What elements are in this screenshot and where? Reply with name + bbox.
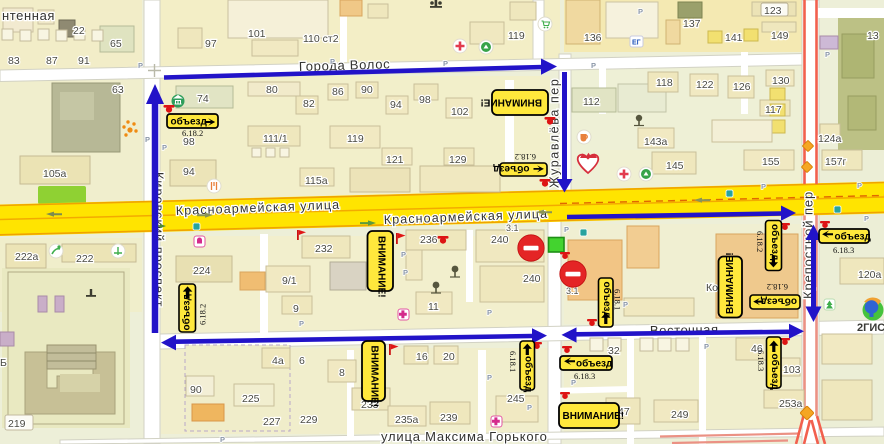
svg-text:нтенная: нтенная [2, 8, 55, 23]
svg-text:6.18.3: 6.18.3 [574, 371, 595, 381]
svg-text:объезд: объезд [522, 356, 534, 393]
svg-text:239: 239 [440, 412, 458, 424]
svg-text:объезд: объезд [576, 358, 613, 370]
svg-text:Р: Р [220, 435, 225, 444]
svg-text:объезд: объезд [760, 295, 797, 307]
svg-text:Р: Р [527, 403, 532, 412]
svg-text:ВНИМАНИЕ!: ВНИМАНИЕ! [563, 411, 625, 422]
svg-text:222а: 222а [15, 251, 39, 263]
svg-text:229: 229 [300, 414, 318, 426]
svg-text:6.18.2: 6.18.2 [767, 282, 788, 292]
svg-text:124а: 124а [818, 133, 842, 145]
svg-text:120а: 120а [858, 269, 882, 281]
svg-text:Р: Р [857, 181, 862, 190]
svg-text:9: 9 [293, 303, 299, 315]
svg-text:6.18.2: 6.18.2 [198, 304, 208, 325]
svg-text:110 ст2: 110 ст2 [303, 33, 339, 45]
svg-text:143а: 143а [644, 136, 668, 148]
svg-text:объезд: объезд [769, 224, 781, 261]
svg-text:6.18.1: 6.18.1 [508, 351, 518, 372]
svg-text:149: 149 [771, 30, 789, 42]
svg-text:121: 121 [386, 154, 404, 166]
svg-text:82: 82 [303, 98, 315, 110]
svg-text:119: 119 [508, 30, 525, 42]
svg-text:8: 8 [339, 367, 345, 379]
svg-text:97: 97 [205, 38, 217, 50]
svg-text:249: 249 [671, 409, 689, 421]
svg-text:Р: Р [403, 268, 408, 277]
svg-text:101: 101 [248, 28, 266, 40]
svg-text:Р: Р [487, 308, 492, 317]
svg-text:91: 91 [78, 55, 90, 67]
svg-text:102: 102 [451, 106, 469, 118]
svg-text:Р: Р [864, 214, 869, 223]
svg-text:90: 90 [361, 84, 373, 96]
svg-text:115а: 115а [305, 175, 328, 187]
svg-text:объезд: объезд [769, 354, 781, 391]
svg-text:130: 130 [772, 75, 790, 87]
svg-text:Р: Р [638, 7, 643, 16]
svg-text:22: 22 [73, 25, 85, 37]
svg-text:112: 112 [583, 96, 600, 108]
svg-text:16: 16 [416, 351, 428, 363]
svg-text:Б: Б [0, 357, 7, 369]
svg-text:13: 13 [867, 30, 879, 42]
svg-text:объезд: объезд [171, 116, 208, 128]
svg-text:86: 86 [332, 86, 344, 98]
svg-text:9/1: 9/1 [282, 275, 297, 287]
svg-text:94: 94 [390, 99, 402, 111]
svg-text:224: 224 [193, 265, 211, 277]
svg-text:Р: Р [591, 61, 596, 70]
svg-text:Р: Р [401, 250, 406, 259]
svg-text:157г: 157г [825, 156, 847, 168]
svg-text:Р: Р [443, 59, 448, 68]
svg-text:объезд: объезд [601, 282, 613, 319]
svg-text:объезд: объезд [493, 163, 530, 175]
svg-text:80: 80 [266, 84, 278, 96]
svg-text:Р: Р [623, 300, 628, 309]
svg-text:2ГИС: 2ГИС [857, 322, 884, 334]
svg-text:155: 155 [762, 156, 780, 168]
svg-text:253а: 253а [779, 398, 803, 410]
svg-text:6.18.3: 6.18.3 [833, 245, 854, 255]
svg-text:Журавлёва пер: Журавлёва пер [548, 78, 562, 188]
svg-text:219: 219 [8, 418, 26, 430]
svg-text:236: 236 [420, 234, 438, 246]
svg-text:122: 122 [696, 79, 714, 91]
svg-text:4а: 4а [272, 355, 284, 367]
svg-text:11: 11 [428, 301, 439, 313]
svg-text:Р: Р [487, 373, 492, 382]
svg-text:222: 222 [76, 253, 94, 265]
svg-text:20: 20 [443, 351, 455, 363]
svg-text:6.18.3: 6.18.3 [756, 350, 766, 371]
svg-text:Р: Р [825, 50, 830, 59]
svg-text:6.18.1: 6.18.1 [613, 289, 623, 310]
svg-text:126: 126 [733, 81, 751, 93]
svg-text:137: 137 [683, 18, 701, 30]
svg-text:123: 123 [764, 5, 782, 17]
svg-text:105а: 105а [43, 168, 67, 180]
svg-text:83: 83 [8, 55, 20, 67]
svg-text:ВНИМАНИЕ!: ВНИМАНИЕ! [376, 236, 387, 298]
svg-text:6.18.2: 6.18.2 [515, 152, 536, 162]
svg-text:117: 117 [765, 104, 782, 116]
svg-text:улица Максима Горького: улица Максима Горького [381, 429, 548, 444]
svg-text:111/1: 111/1 [263, 133, 288, 145]
svg-text:235а: 235а [395, 414, 419, 426]
svg-text:Ко: Ко [706, 282, 718, 294]
svg-text:141: 141 [725, 32, 743, 44]
svg-text:объезд: объезд [181, 294, 193, 331]
svg-text:136: 136 [584, 32, 602, 44]
svg-text:145: 145 [666, 160, 684, 172]
svg-text:Р: Р [761, 182, 766, 191]
svg-text:94: 94 [183, 166, 195, 178]
svg-text:90: 90 [190, 384, 202, 396]
svg-text:Р: Р [162, 143, 167, 152]
svg-text:ВНИМАНИЕ!: ВНИМАНИЕ! [725, 252, 736, 314]
svg-text:6: 6 [299, 355, 305, 367]
svg-text:98: 98 [419, 94, 431, 106]
svg-text:225: 225 [242, 393, 260, 405]
svg-text:63: 63 [112, 84, 124, 96]
svg-text:Р: Р [330, 57, 335, 66]
svg-text:103: 103 [783, 364, 801, 376]
svg-text:245: 245 [507, 393, 525, 405]
svg-text:65: 65 [110, 38, 122, 50]
svg-text:ВНИМАНИЕ!: ВНИМАНИЕ! [480, 96, 542, 107]
svg-text:240: 240 [491, 234, 509, 246]
svg-text:232: 232 [315, 243, 333, 255]
svg-text:объезд: объезд [835, 231, 872, 243]
svg-text:227: 227 [263, 416, 281, 428]
svg-text:Р: Р [704, 342, 709, 351]
svg-text:87: 87 [46, 55, 58, 67]
svg-text:Р: Р [564, 225, 569, 234]
svg-text:Р: Р [145, 135, 150, 144]
svg-text:3.1: 3.1 [506, 223, 519, 233]
svg-text:6.18.2: 6.18.2 [755, 231, 765, 252]
svg-text:118: 118 [656, 77, 673, 89]
svg-text:240: 240 [523, 273, 541, 285]
svg-text:Р: Р [299, 319, 304, 328]
svg-text:ВНИМАНИЕ!: ВНИМАНИЕ! [369, 346, 380, 408]
svg-text:ЕГ: ЕГ [632, 40, 641, 47]
svg-text:74: 74 [197, 93, 209, 105]
svg-text:6.18.2: 6.18.2 [182, 128, 203, 138]
svg-text:Р: Р [138, 61, 143, 70]
svg-text:119: 119 [347, 133, 364, 145]
svg-text:129: 129 [449, 154, 467, 166]
